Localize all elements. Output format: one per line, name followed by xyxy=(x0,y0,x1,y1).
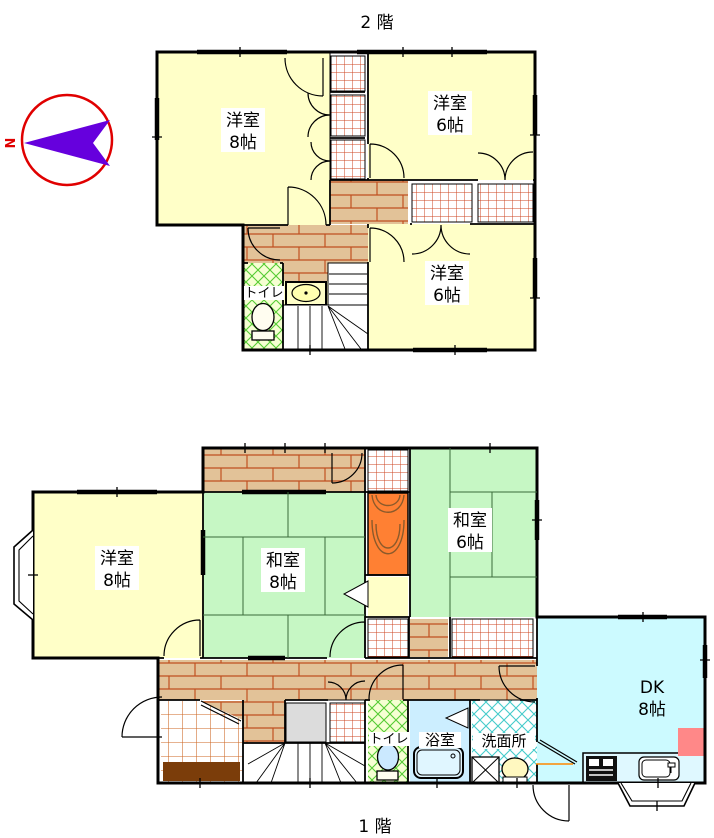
entrance-step xyxy=(163,762,240,781)
veranda-1f xyxy=(203,449,365,492)
floor2-plan: 2 階 xyxy=(152,13,540,355)
room-dk-label1: DK xyxy=(640,678,665,698)
bathtub-icon xyxy=(414,747,463,778)
room-west8-1f-label1: 洋室 xyxy=(100,549,134,569)
room-japanese6-label1: 和室 xyxy=(453,511,487,531)
room-west8-2f-label2: 8帖 xyxy=(229,133,257,153)
toilet-icon-2f xyxy=(252,304,274,341)
floorplan-canvas: N 2 階 xyxy=(0,0,714,838)
hall-step-1f xyxy=(410,619,448,657)
floor1-plan: 洋室 8帖 和室 8帖 和室 6帖 DK 8帖 トイレ 浴室 洗面所 1 階 xyxy=(14,443,710,837)
closet-1f-top xyxy=(368,450,408,491)
bath-label: 浴室 xyxy=(425,731,455,749)
closet-1f-mid xyxy=(368,619,408,657)
compass-north-label: N xyxy=(4,138,19,149)
hall-storage-1f xyxy=(286,703,326,742)
room-west6-top-2f-label2: 6帖 xyxy=(436,116,464,136)
stairs-1f xyxy=(243,743,365,783)
closet-2f-4 xyxy=(412,184,472,222)
room-west6-top-2f-label1: 洋室 xyxy=(433,94,467,114)
floor2-title: 2 階 xyxy=(360,13,393,33)
toilet-icon-1f xyxy=(377,744,399,780)
closet-2f-1 xyxy=(331,56,365,91)
room-west8-1f-label2: 8帖 xyxy=(103,571,131,591)
room-west6-bottom-2f-label2: 6帖 xyxy=(433,286,461,306)
closet-2f-2 xyxy=(331,95,365,136)
butsuma-alcove xyxy=(368,577,408,617)
hallway-2f-lower xyxy=(283,263,328,282)
hallway-2f-upper xyxy=(330,180,408,224)
closet-1f-right xyxy=(452,619,533,657)
compass: N xyxy=(4,95,112,185)
washroom-label: 洗面所 xyxy=(481,732,526,750)
corridor-1f xyxy=(243,700,285,743)
closet-2f-5 xyxy=(478,184,533,222)
toilet-1f-label: トイレ xyxy=(369,732,408,747)
toilet-2f-label: トイレ xyxy=(244,286,283,301)
room-japanese6-label2: 6帖 xyxy=(456,533,484,553)
room-japanese8-label1: 和室 xyxy=(266,551,300,571)
floorplan-svg: N 2 階 xyxy=(0,0,714,838)
room-dk-label2: 8帖 xyxy=(638,700,666,720)
washbasin-drain-2f xyxy=(304,291,307,294)
room-japanese8-label2: 8帖 xyxy=(269,573,297,593)
closet-1f-stairs xyxy=(330,703,365,742)
washbasin-icon-1f xyxy=(502,758,528,782)
room-west6-bottom-2f-label1: 洋室 xyxy=(430,264,464,284)
bay-window-dk xyxy=(618,783,695,811)
north-arrow-icon xyxy=(24,120,110,166)
refrigerator-space xyxy=(678,728,704,756)
closet-2f-3 xyxy=(331,140,365,179)
washing-machine-icon xyxy=(472,757,499,783)
room-west8-2f-label1: 洋室 xyxy=(226,111,260,131)
kitchen-counter xyxy=(583,753,705,783)
floor1-title: 1 階 xyxy=(358,817,391,837)
hallway-2f-mid xyxy=(243,225,368,263)
